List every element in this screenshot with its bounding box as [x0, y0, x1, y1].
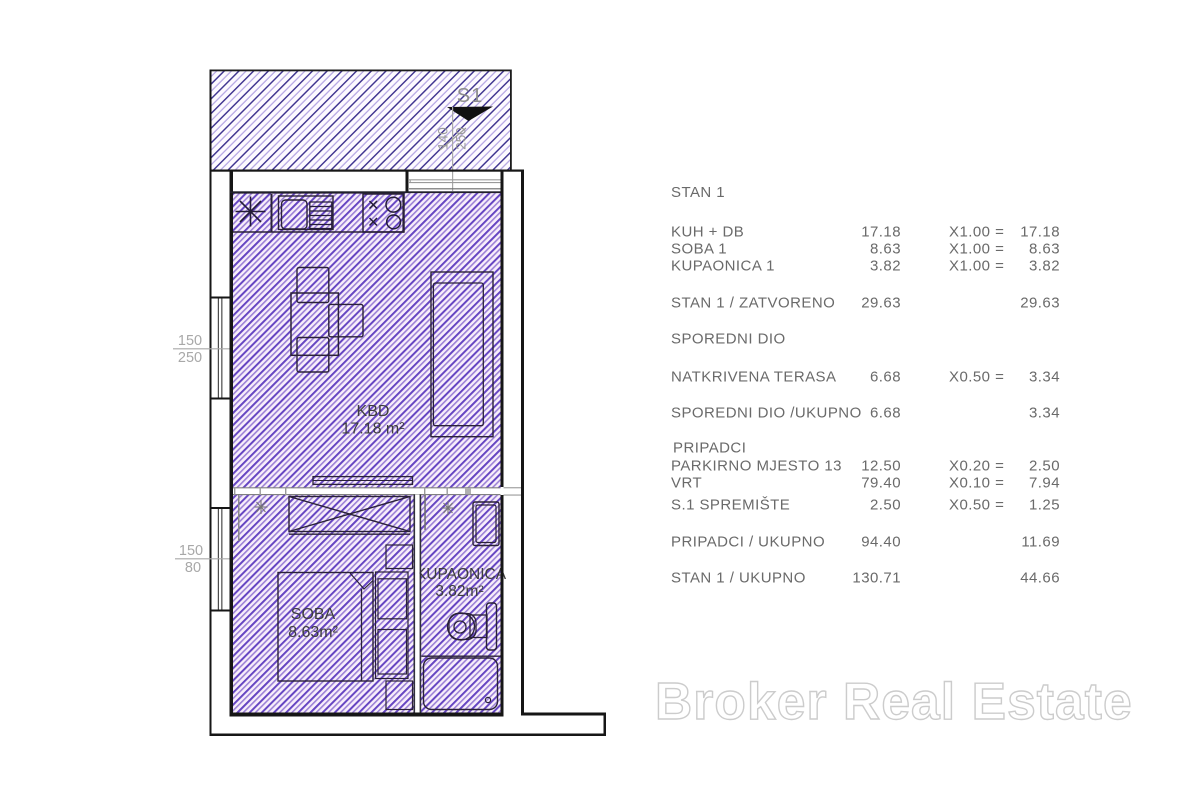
svg-text:8.63m²: 8.63m² — [288, 624, 338, 641]
svg-text:KUPAONICA 1: KUPAONICA 1 — [671, 258, 775, 275]
svg-text:94.40: 94.40 — [861, 534, 901, 551]
svg-text:VRT: VRT — [671, 475, 702, 492]
svg-text:STAN 1: STAN 1 — [671, 184, 725, 201]
svg-text:7.94: 7.94 — [1029, 475, 1060, 492]
svg-text:2.50: 2.50 — [870, 497, 901, 514]
svg-text:150: 150 — [179, 543, 203, 559]
svg-text:44.66: 44.66 — [1020, 570, 1060, 587]
svg-text:X0.10 =: X0.10 = — [949, 475, 1004, 492]
svg-text:250: 250 — [178, 350, 202, 366]
svg-text:6.68: 6.68 — [870, 405, 901, 422]
svg-text:PARKIRNO MJESTO 13: PARKIRNO MJESTO 13 — [671, 458, 842, 475]
svg-text:SPOREDNI DIO: SPOREDNI DIO — [671, 331, 786, 348]
svg-text:X0.20 =: X0.20 = — [949, 458, 1004, 475]
svg-text:S1: S1 — [457, 85, 483, 107]
svg-text:NATKRIVENA TERASA: NATKRIVENA TERASA — [671, 369, 836, 386]
svg-text:8.63: 8.63 — [870, 241, 901, 258]
svg-text:140: 140 — [436, 127, 451, 150]
svg-text:S.1 SPREMIŠTE: S.1 SPREMIŠTE — [671, 497, 790, 514]
svg-text:PRIPADCI / UKUPNO: PRIPADCI / UKUPNO — [671, 534, 825, 551]
svg-text:3.82: 3.82 — [870, 258, 901, 275]
svg-text:12.50: 12.50 — [861, 458, 901, 475]
svg-text:6.68: 6.68 — [870, 369, 901, 386]
svg-text:KBD: KBD — [357, 403, 390, 420]
svg-text:250: 250 — [454, 127, 469, 150]
svg-text:3.82m²: 3.82m² — [435, 583, 483, 600]
svg-text:150: 150 — [178, 333, 202, 349]
svg-text:8.63: 8.63 — [1029, 241, 1060, 258]
svg-text:11.69: 11.69 — [1021, 534, 1060, 551]
svg-text:X1.00 =: X1.00 = — [949, 241, 1004, 258]
svg-text:PRIPADCI: PRIPADCI — [673, 440, 746, 457]
svg-text:SPOREDNI DIO /UKUPNO: SPOREDNI DIO /UKUPNO — [671, 405, 862, 422]
svg-text:3.34: 3.34 — [1029, 369, 1060, 386]
svg-text:X0.50 =: X0.50 = — [949, 497, 1004, 514]
svg-text:X1.00 =: X1.00 = — [949, 258, 1004, 275]
svg-text:SOBA 1: SOBA 1 — [671, 241, 727, 258]
svg-text:Broker Real Estate: Broker Real Estate — [655, 672, 1133, 730]
svg-text:17.18 m²: 17.18 m² — [341, 421, 405, 438]
svg-text:3.34: 3.34 — [1029, 405, 1060, 422]
svg-text:SOBA: SOBA — [291, 606, 336, 623]
svg-text:17.18: 17.18 — [861, 224, 901, 241]
svg-text:X0.50 =: X0.50 = — [949, 369, 1004, 386]
svg-text:29.63: 29.63 — [1020, 295, 1060, 312]
svg-text:3.82: 3.82 — [1029, 258, 1060, 275]
svg-text:KUH + DB: KUH + DB — [671, 224, 744, 241]
svg-text:STAN 1 / ZATVORENO: STAN 1 / ZATVORENO — [671, 295, 835, 312]
svg-text:STAN 1 / UKUPNO: STAN 1 / UKUPNO — [671, 570, 806, 587]
svg-text:X1.00 =: X1.00 = — [949, 224, 1004, 241]
svg-text:29.63: 29.63 — [861, 295, 901, 312]
svg-text:130.71: 130.71 — [852, 570, 901, 587]
svg-text:17.18: 17.18 — [1020, 224, 1060, 241]
svg-text:80: 80 — [185, 560, 201, 576]
svg-text:79.40: 79.40 — [861, 475, 901, 492]
svg-text:KUPAONICA: KUPAONICA — [416, 566, 507, 583]
svg-text:1.25: 1.25 — [1029, 497, 1060, 514]
svg-text:2.50: 2.50 — [1029, 458, 1060, 475]
